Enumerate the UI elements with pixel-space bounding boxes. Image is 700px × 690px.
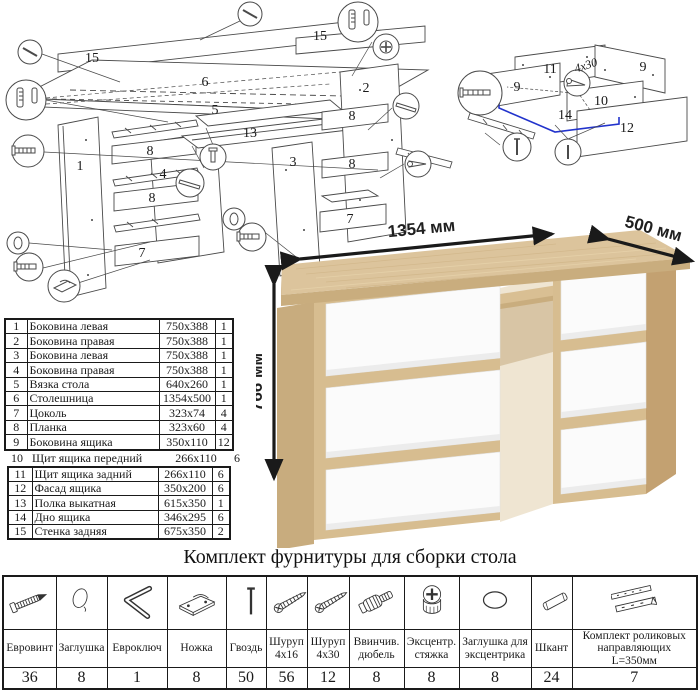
parts-cell-name: Дно ящика	[32, 510, 158, 524]
dowel-screw-icon	[354, 579, 400, 623]
parts-cell-size: 1354x500	[159, 391, 215, 405]
parts-cell-size: 350x110	[159, 435, 215, 450]
parts-cell-qty: 1	[215, 391, 233, 405]
part-number-label: 7	[139, 246, 146, 261]
parts-cell-size: 346x295	[158, 510, 212, 524]
parts-cell-qty: 1	[215, 334, 233, 348]
part-number-label: 2	[363, 81, 370, 96]
parts-cell-qty: 4	[215, 420, 233, 434]
parts-cell-num: 1	[5, 319, 27, 334]
part-number-label: 9	[640, 60, 647, 75]
parts-cell-name: Фасад ящика	[32, 481, 158, 495]
part-number-label: 4	[160, 167, 167, 182]
parts-cell-num: 6	[5, 391, 27, 405]
hardware-name-cell: Заглушка	[56, 630, 107, 668]
part-number-label: 15	[85, 51, 99, 66]
dowel-plug-icon	[338, 2, 378, 42]
hardware-icon-cell	[531, 576, 572, 630]
parts-cell-num: 11	[8, 467, 32, 482]
hardware-qty-cell: 36	[3, 668, 56, 690]
bolt-icon	[200, 144, 226, 170]
part-number-label: 14	[558, 108, 572, 123]
drawer-assembly-diagram: 4x30 1199101412	[455, 15, 700, 210]
parts-cell-name: Цоколь	[27, 406, 159, 420]
hardware-qty-cell: 1	[107, 668, 167, 690]
parts-cell-qty: 6	[212, 510, 230, 524]
hardware-name-cell: Ножка	[167, 630, 226, 668]
parts-row: 15Стенка задняя675x3502	[8, 525, 230, 540]
hardware-icon-cell	[572, 576, 697, 630]
dimension-width-label: 1354 мм	[387, 216, 456, 241]
hardware-icon-cell	[226, 576, 266, 630]
cam-lock-icon	[409, 579, 455, 623]
euro-screw-icon	[14, 253, 43, 281]
screw-icon	[405, 151, 431, 177]
hardware-icon-cell	[266, 576, 307, 630]
part-number-label: 15	[313, 29, 327, 44]
part-number-label: 8	[149, 191, 156, 206]
cap-icon	[223, 208, 245, 230]
parts-cell-qty: 1	[215, 377, 233, 391]
drawer-slides-icon	[611, 579, 657, 623]
parts-cell-num: 12	[8, 481, 32, 495]
parts-cell-qty: 1	[215, 319, 233, 334]
hardware-icon-cell	[56, 576, 107, 630]
hardware-qty-cell: 8	[404, 668, 459, 690]
nail-icon	[228, 579, 267, 623]
parts-cell-qty: 12	[215, 435, 233, 450]
parts-cell-name: Вязка стола	[27, 377, 159, 391]
part-number-label: 8	[349, 109, 356, 124]
hardware-name-cell: Комплект роликовых направляющих L=350мм	[572, 630, 697, 668]
slide-rail-icon	[393, 93, 419, 119]
parts-cell-num: 10	[4, 451, 30, 466]
hardware-qty-cell: 8	[167, 668, 226, 690]
parts-cell-size: 615x350	[158, 496, 212, 510]
dowel-plug-icon	[6, 80, 46, 120]
parts-cell-size: 323x74	[159, 406, 215, 420]
part-number-label: 5	[212, 103, 219, 118]
euro-screw-icon	[458, 71, 502, 115]
parts-cell-size: 350x200	[158, 481, 212, 495]
hex-key-icon	[114, 579, 160, 623]
parts-cell-qty: 6	[212, 481, 230, 495]
part-number-label: 8	[349, 157, 356, 172]
foot-icon	[48, 270, 80, 302]
cam-lock-icon	[373, 34, 399, 60]
parts-cell-name: Боковина левая	[27, 348, 159, 362]
screw-icon	[309, 579, 350, 623]
parts-row-10: 10Щит ящика передний266x1106	[4, 451, 254, 466]
desk-render: 1354 мм 500 мм 766 мм	[256, 212, 700, 548]
parts-cell-name: Полка выкатная	[32, 496, 158, 510]
hardware-icon-cell	[404, 576, 459, 630]
parts-row: 6Столешница1354x5001	[5, 391, 233, 405]
parts-cell-size: 323x60	[159, 420, 215, 434]
parts-row: 1Боковина левая750x3881	[5, 319, 233, 334]
parts-cell-num: 15	[8, 525, 32, 540]
wood-dowel-icon	[533, 579, 573, 623]
hardware-name-cell: Эксцентр. стяжка	[404, 630, 459, 668]
nail-icon	[18, 40, 42, 64]
parts-row: 8Планка323x604	[5, 420, 233, 434]
hardware-icon-cell	[307, 576, 349, 630]
parts-cell-num: 8	[5, 420, 27, 434]
left-pedestal	[277, 282, 500, 548]
assembly-instruction-sheet: { "sheet": { "type": "furniture assembly…	[0, 0, 700, 677]
part-number-label: 6	[202, 75, 209, 90]
parts-list: 1Боковина левая750x38812Боковина правая7…	[4, 318, 254, 540]
parts-cell-qty: 6	[212, 467, 230, 482]
hardware-qty-cell: 8	[349, 668, 404, 690]
parts-cell-num: 14	[8, 510, 32, 524]
part-number-label: 13	[243, 126, 257, 141]
hardware-qty-cell: 50	[226, 668, 266, 690]
parts-cell-name: Планка	[27, 420, 159, 434]
parts-cell-num: 7	[5, 406, 27, 420]
parts-row: 14Дно ящика346x2956	[8, 510, 230, 524]
parts-cell-size: 675x350	[158, 525, 212, 540]
euro-screw-icon	[12, 135, 44, 167]
parts-cell-qty: 1	[212, 496, 230, 510]
parts-row: 7Цоколь323x744	[5, 406, 233, 420]
hardware-icon-cell	[107, 576, 167, 630]
parts-cell-name: Боковина ящика	[27, 435, 159, 450]
hardware-qty-cell: 8	[459, 668, 531, 690]
parts-cell-num: 9	[5, 435, 27, 450]
parts-cell-num: 4	[5, 363, 27, 377]
parts-cell-size: 750x388	[159, 348, 215, 362]
parts-cell-num: 13	[8, 496, 32, 510]
hardware-qty-cell: 12	[307, 668, 349, 690]
part-number-label: 10	[594, 94, 608, 109]
hardware-qty-cell: 56	[266, 668, 307, 690]
parts-cell-size: 640x260	[159, 377, 215, 391]
cap-icon	[59, 579, 105, 623]
hardware-icon-cell	[459, 576, 531, 630]
parts-cell-name: Боковина правая	[27, 363, 159, 377]
nail-icon	[503, 133, 531, 161]
hardware-kit: ЕвровинтЗаглушкаЕвроключНожкаГвоздьШуруп…	[2, 575, 698, 690]
dimension-height-label: 766 мм	[256, 353, 266, 411]
hardware-qty-cell: 24	[531, 668, 572, 690]
parts-cell-size: 266x110	[158, 467, 212, 482]
slide-rail-icon	[176, 169, 204, 197]
hardware-kit-table: ЕвровинтЗаглушкаЕвроключНожкаГвоздьШуруп…	[2, 575, 698, 690]
parts-cell-name: Стенка задняя	[32, 525, 158, 540]
parts-cell-qty: 4	[215, 406, 233, 420]
parts-cell-name: Столешница	[27, 391, 159, 405]
hardware-name-cell: Гвоздь	[226, 630, 266, 668]
hardware-name-cell: Евровинт	[3, 630, 56, 668]
hardware-name-cell: Шуруп 4х16	[266, 630, 307, 668]
parts-cell-size: 750x388	[159, 319, 215, 334]
hardware-icon-cell	[3, 576, 56, 630]
parts-cell-name: Боковина левая	[27, 319, 159, 334]
right-pedestal	[553, 252, 676, 504]
hardware-name-cell: Заглушка для эксцентрика	[459, 630, 531, 668]
parts-cell-qty: 1	[215, 363, 233, 377]
screw-icon	[268, 579, 308, 623]
cap-icon	[7, 232, 29, 254]
hardware-name-cell: Шкант	[531, 630, 572, 668]
part-number-label: 3	[290, 155, 297, 170]
part-number-label: 9	[514, 80, 521, 95]
parts-row: 11Щит ящика задний266x1106	[8, 467, 230, 482]
parts-row: 3Боковина левая750x3881	[5, 348, 233, 362]
parts-cell-num: 5	[5, 377, 27, 391]
parts-row: 12Фасад ящика350x2006	[8, 481, 230, 495]
parts-cell-qty: 1	[215, 348, 233, 362]
parts-cell-qty: 6	[226, 451, 248, 466]
euro-screw-icon	[7, 579, 53, 623]
part-number-label: 8	[147, 144, 154, 159]
parts-cell-name: Щит ящика задний	[32, 467, 158, 482]
parts-cell-name: Боковина правая	[27, 334, 159, 348]
hardware-icon-cell	[167, 576, 226, 630]
parts-row: 9Боковина ящика350x11012	[5, 435, 233, 450]
parts-cell-name: Щит ящика передний	[30, 451, 166, 466]
hardware-name-cell: Шуруп 4х30	[307, 630, 349, 668]
cam-cap-icon	[472, 579, 518, 623]
parts-cell-size: 750x388	[159, 334, 215, 348]
nail-icon	[555, 139, 581, 165]
parts-list-table-bottom: 11Щит ящика задний266x110612Фасад ящика3…	[7, 466, 231, 541]
hardware-qty-cell: 8	[56, 668, 107, 690]
hardware-kit-title: Комплект фурнитуры для сборки стола	[0, 546, 700, 569]
parts-cell-size: 266x110	[166, 451, 226, 466]
part-number-label: 1	[77, 159, 84, 174]
parts-row: 13Полка выкатная615x3501	[8, 496, 230, 510]
parts-cell-qty: 2	[212, 525, 230, 540]
parts-cell-num: 2	[5, 334, 27, 348]
part-number-label: 12	[620, 121, 634, 136]
nail-icon	[238, 2, 262, 26]
foot-icon	[174, 579, 220, 623]
hardware-icon-cell	[349, 576, 404, 630]
hardware-name-cell: Евроключ	[107, 630, 167, 668]
parts-row: 2Боковина правая750x3881	[5, 334, 233, 348]
parts-row: 5Вязка стола640x2601	[5, 377, 233, 391]
hardware-name-cell: Ввинчив. дюбель	[349, 630, 404, 668]
parts-row: 4Боковина правая750x3881	[5, 363, 233, 377]
parts-cell-num: 3	[5, 348, 27, 362]
hardware-qty-cell: 7	[572, 668, 697, 690]
parts-list-table-top: 1Боковина левая750x38812Боковина правая7…	[4, 318, 234, 451]
part-number-label: 11	[543, 62, 556, 77]
parts-cell-size: 750x388	[159, 363, 215, 377]
